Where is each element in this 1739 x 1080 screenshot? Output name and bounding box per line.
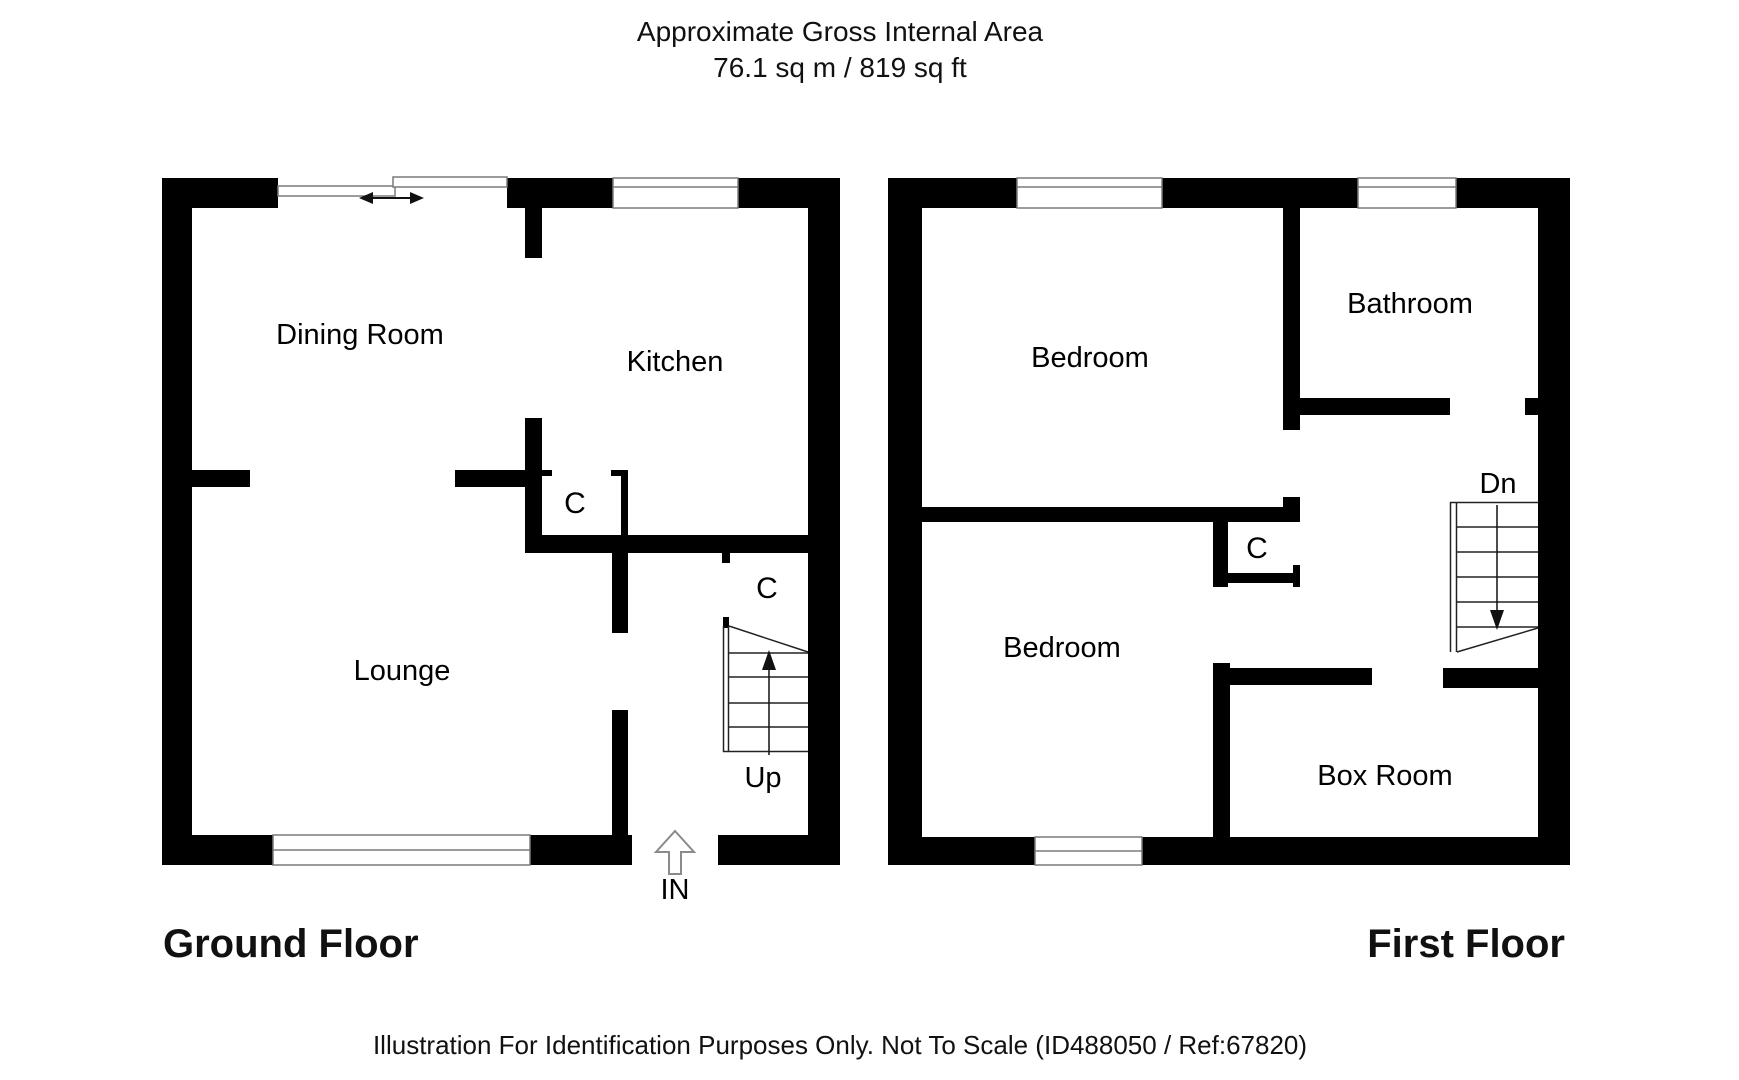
closet-jamb-hook: [1293, 565, 1300, 587]
first-floor-plan: Bedroom Bathroom Bedroom C Dn Box Room: [888, 178, 1570, 865]
patio-door-panel-inner: [278, 186, 395, 196]
floorplan-page: Approximate Gross Internal Area 76.1 sq …: [0, 0, 1739, 1080]
bedroom-front-window: [1017, 178, 1162, 208]
ground-floor-plan: Dining Room Kitchen Lounge C C Up IN: [162, 177, 840, 906]
first-staircase: [1450, 502, 1538, 652]
in-arrow: [656, 831, 694, 874]
entrance-arrow: [656, 831, 694, 874]
room-label-lounge: Lounge: [354, 655, 451, 687]
closet-label-understairs: C: [756, 572, 778, 605]
disclaimer-text: Illustration For Identification Purposes…: [0, 1030, 1680, 1061]
closet-label: C: [1246, 532, 1268, 565]
first-floor-walls: [888, 178, 1570, 865]
understairs-closet-jamb: [722, 551, 730, 563]
sliding-arrow-head-right: [410, 192, 424, 204]
wall-right: [808, 178, 840, 865]
bedroom-divider-lip: [1283, 497, 1300, 507]
entrance-label-in: IN: [661, 874, 690, 906]
closet-label-kitchen: C: [564, 487, 586, 520]
wall-dining-stub-left: [192, 470, 250, 487]
closet-wall-bottom: [1228, 573, 1295, 583]
stair-winder-line: [729, 626, 808, 652]
room-label-kitchen: Kitchen: [627, 346, 724, 378]
ground-floor-title: Ground Floor: [163, 922, 419, 967]
bathroom-door-jamb: [1525, 398, 1538, 415]
boxroom-wall-top: [1230, 668, 1372, 685]
stairs-label-dn: Dn: [1479, 468, 1516, 500]
wall-top-a: [162, 178, 278, 208]
room-label-bedroom-front: Bedroom: [1031, 342, 1149, 374]
first-floor-title: First Floor: [1367, 922, 1565, 967]
wall-bathroom-bottom: [1293, 398, 1450, 415]
closet-jamb-right-top: [611, 470, 628, 476]
patio-door-panel-outer: [393, 177, 507, 187]
stairs-label-up: Up: [744, 762, 781, 794]
wall-top-b: [507, 178, 613, 208]
stair-winder-line: [1457, 628, 1538, 652]
wall-bottom-b: [1142, 837, 1570, 865]
wall-left: [162, 178, 192, 865]
wall-right: [1538, 178, 1570, 865]
closet-wall-left: [1213, 522, 1228, 587]
wall-kitchen-divider-mid: [525, 418, 542, 553]
wall-bathroom-divider: [1283, 208, 1300, 430]
boxroom-wall-left: [1213, 663, 1230, 837]
ground-floor-labels: Dining Room Kitchen Lounge C C Up IN: [276, 319, 781, 906]
ground-floor-windows: [273, 177, 738, 865]
wall-hall-lower: [612, 710, 628, 835]
ground-floor-walls: [162, 178, 840, 865]
bathroom-window: [1358, 178, 1456, 208]
landing-wall-bottom: [1443, 668, 1540, 688]
wall-bottom-a: [162, 835, 273, 865]
wall-bottom-c: [718, 835, 840, 865]
wall-top-b: [1162, 178, 1358, 208]
wall-hall-upper: [612, 553, 628, 633]
closet-door-leaf: [621, 476, 628, 540]
room-label-dining: Dining Room: [276, 319, 444, 351]
wall-bedroom-divider: [910, 507, 1300, 522]
closet-jamb-left: [542, 470, 552, 476]
wall-kitchen-bottom: [525, 535, 808, 553]
room-label-bedroom-back: Bedroom: [1003, 632, 1121, 664]
first-floor-labels: Bedroom Bathroom Bedroom C Dn Box Room: [1003, 288, 1516, 792]
wall-dining-stub-right: [455, 470, 525, 487]
wall-top-a: [888, 178, 1017, 208]
kitchen-window: [613, 178, 738, 208]
room-label-bathroom: Bathroom: [1347, 288, 1473, 320]
wall-bottom-a: [888, 837, 1035, 865]
room-label-boxroom: Box Room: [1317, 760, 1452, 792]
floorplan-drawing: Dining Room Kitchen Lounge C C Up IN: [0, 0, 1739, 1080]
wall-bottom-b: [530, 835, 632, 865]
wall-kitchen-divider-top: [525, 208, 542, 258]
ground-staircase: [723, 626, 808, 755]
